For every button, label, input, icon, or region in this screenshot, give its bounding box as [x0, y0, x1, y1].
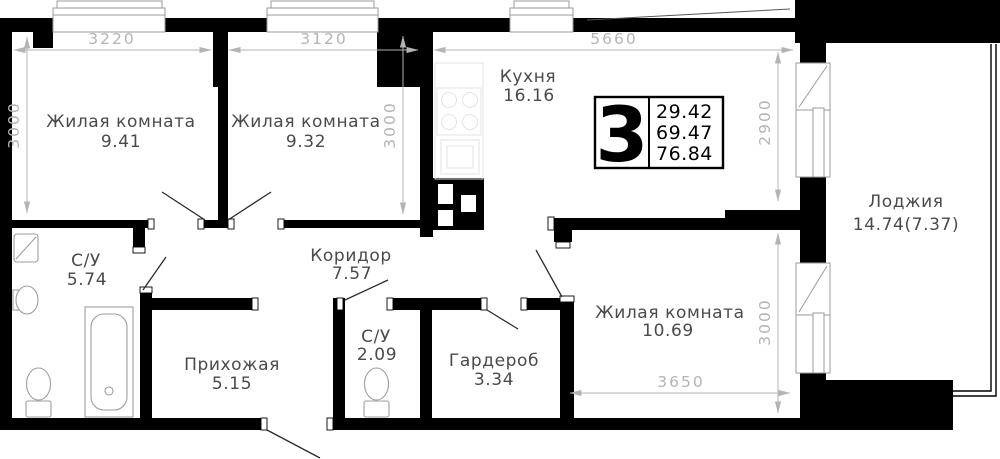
balcony-door-kitchen: [796, 63, 830, 177]
washer-bathroom: [14, 234, 38, 262]
wc-name: С/У: [361, 327, 391, 347]
apartment-info-badge: 3 29.42 69.47 76.84: [595, 90, 723, 179]
bathroom-area: 5.74: [67, 270, 107, 290]
dim-room3-width: 3650: [657, 373, 704, 391]
bathtub: [85, 307, 133, 417]
window-room1: [53, 1, 165, 32]
bathroom-name: С/У: [71, 251, 101, 271]
sink-bathroom: [13, 286, 38, 314]
hallway-area: 5.15: [212, 374, 252, 394]
window-room2: [267, 1, 378, 32]
badge-total-area: 76.84: [656, 143, 713, 165]
toilet-bathroom: [26, 368, 51, 417]
floor-plan-svg: 3220 3120 5660 3000 3000 2900 3000 3650 …: [0, 0, 1000, 459]
badge-living-area: 29.42: [656, 101, 713, 123]
floor-plan-page: 3220 3120 5660 3000 3000 2900 3000 3650 …: [0, 0, 1000, 459]
room3-area: 10.69: [642, 321, 694, 341]
balcony-door-room3: [796, 263, 830, 373]
corridor-area: 7.57: [332, 264, 372, 284]
kitchen-name: Кухня: [500, 67, 557, 87]
room1-name: Жилая комната: [46, 112, 195, 132]
badge-rooms-count: 3: [596, 90, 649, 179]
loggia-area: 14.74(7.37): [853, 215, 959, 235]
room1-area: 9.41: [101, 132, 141, 152]
dim-kitchen-width: 5660: [590, 30, 637, 48]
loggia-railing: [953, 44, 996, 396]
loggia-name: Лоджия: [868, 192, 943, 212]
wardrobe-area: 3.34: [474, 370, 514, 390]
dim-kitchen-height: 2900: [756, 98, 774, 145]
dim-room3-height: 3000: [756, 298, 774, 345]
kitchen-appliances: [435, 63, 483, 179]
wc-area: 2.09: [357, 345, 397, 365]
room3-name: Жилая комната: [595, 303, 744, 323]
corridor-name: Коридор: [310, 246, 391, 266]
hallway-name: Прихожая: [184, 355, 280, 375]
window-kitchen: [510, 1, 573, 32]
wardrobe-name: Гардероб: [449, 351, 539, 371]
kitchen-area: 16.16: [503, 86, 555, 106]
room2-area: 9.32: [286, 132, 326, 152]
dim-room2-width: 3120: [300, 30, 347, 48]
room2-name: Жилая комната: [231, 112, 380, 132]
dim-room2-height: 3000: [381, 101, 399, 148]
dim-room1-width: 3220: [88, 30, 135, 48]
dim-room1-height: 3000: [5, 101, 23, 148]
badge-usable-area: 69.47: [656, 122, 713, 144]
toilet-wc: [364, 368, 389, 417]
